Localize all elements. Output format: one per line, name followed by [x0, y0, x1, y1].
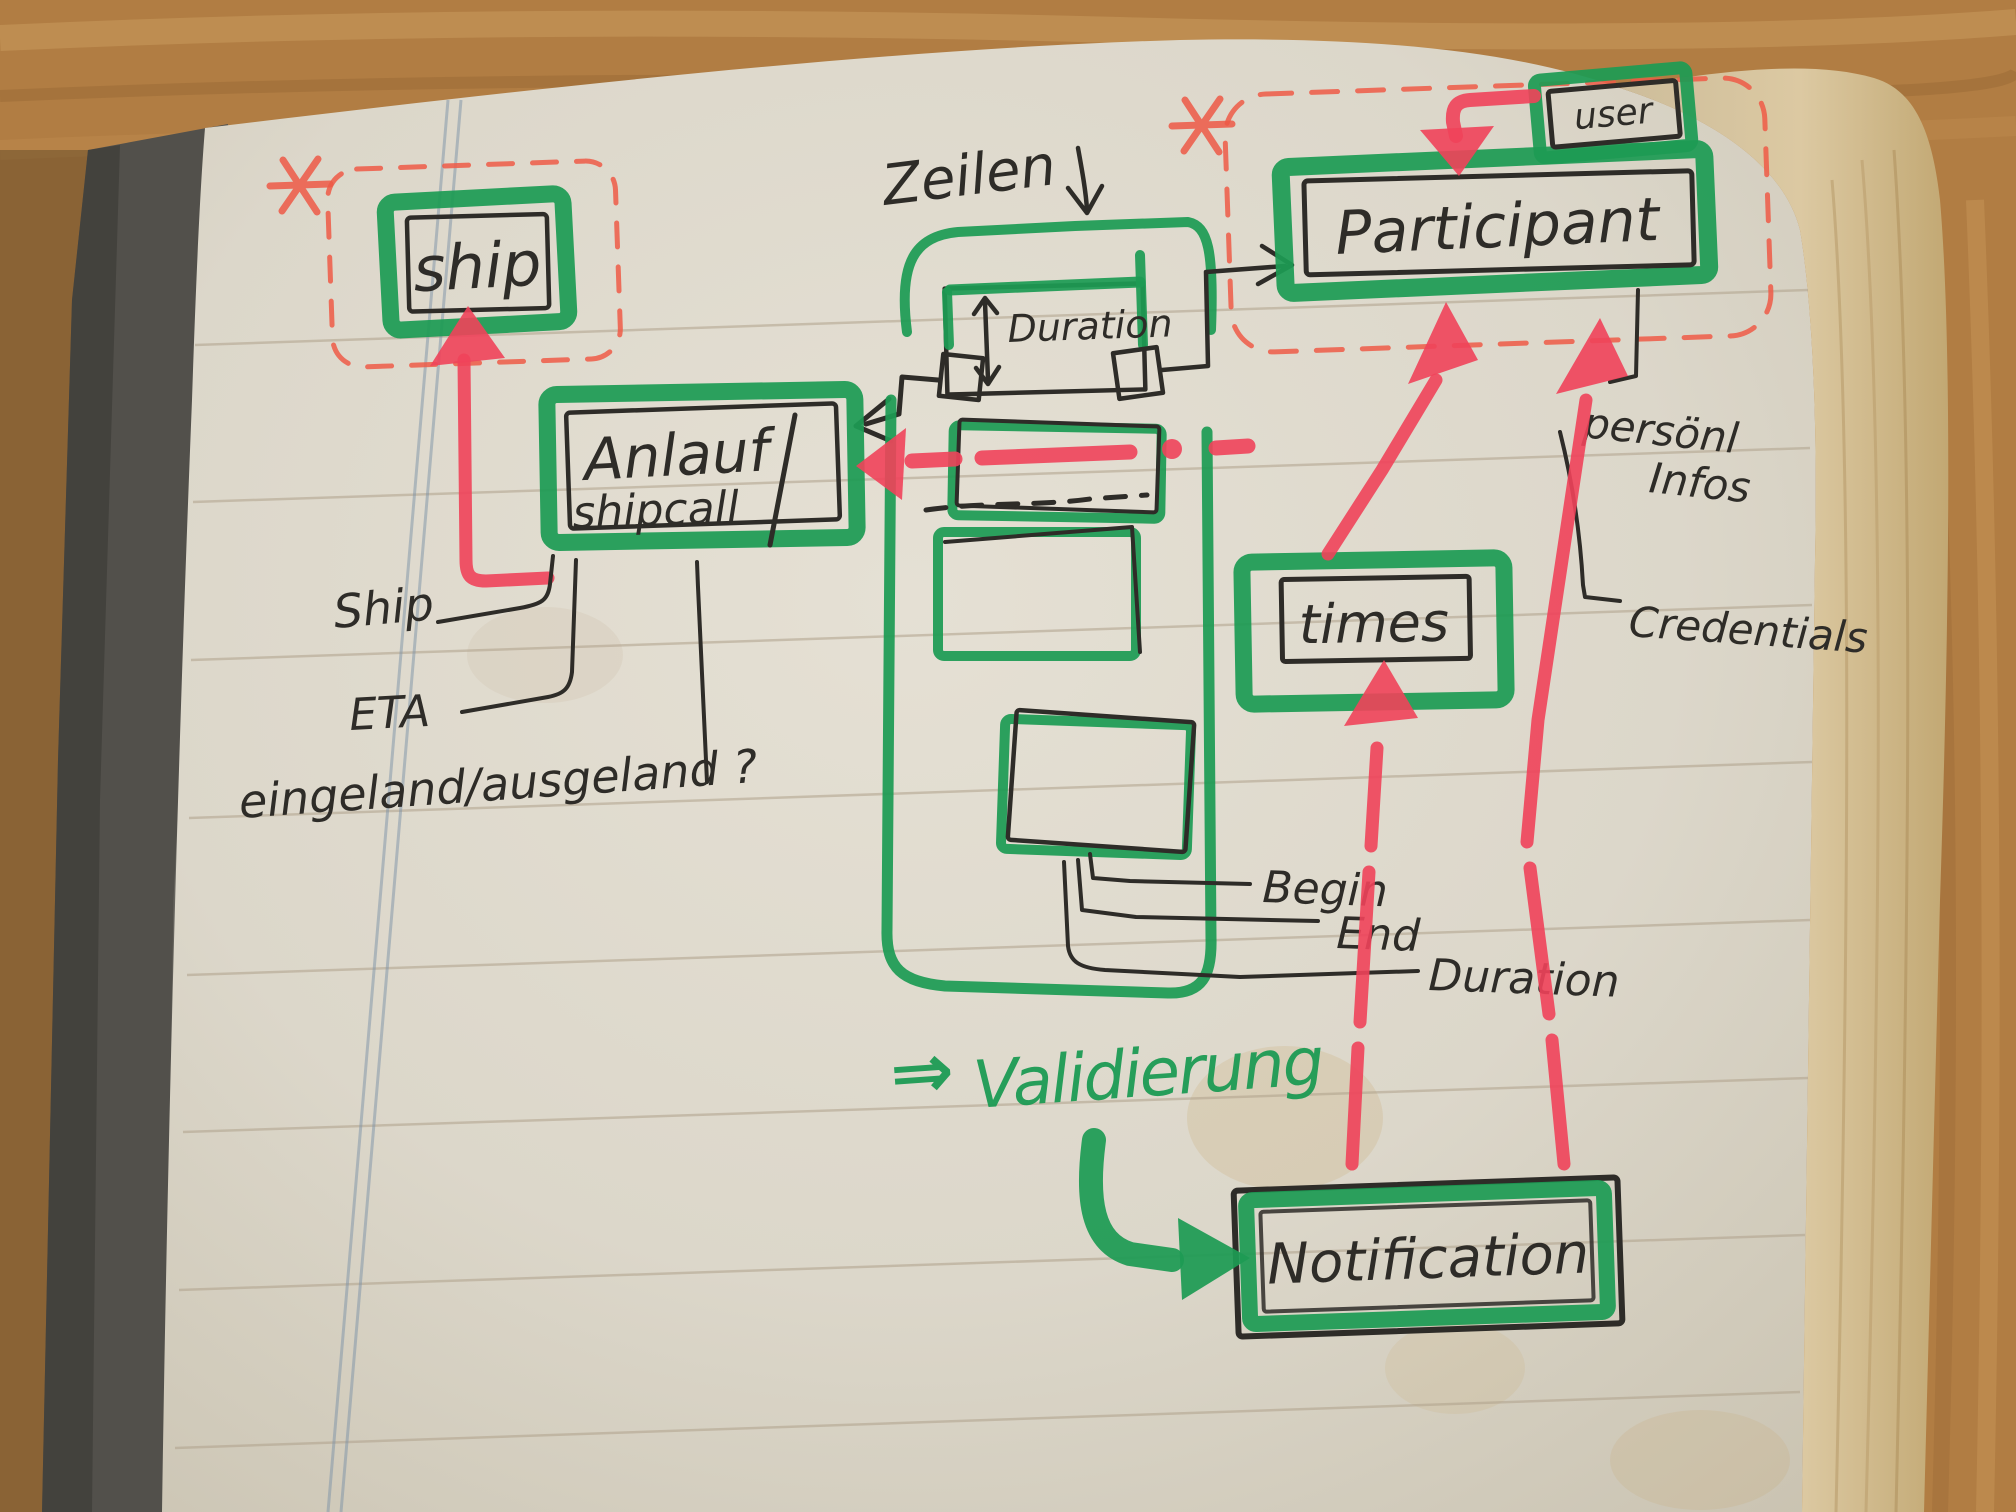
shipcall-box-label-2: shipcall: [572, 482, 741, 539]
page-stain: [1385, 1322, 1525, 1414]
shipcall-box-label-1: Anlauf: [578, 416, 778, 494]
duration-box-label: Duration: [1007, 301, 1173, 351]
times-box-label: times: [1298, 591, 1449, 657]
notebook-photo: ship Zeilen Duration: [0, 0, 2016, 1512]
user-box-label: user: [1572, 90, 1656, 138]
eta-label: ETA: [348, 686, 431, 741]
ship-box-label: ship: [411, 227, 543, 307]
validierung-arrow: ⇒: [887, 1025, 957, 1118]
participant-box-label: Participant: [1334, 185, 1663, 269]
duration-label: Duration: [1428, 950, 1621, 1008]
page-stain: [467, 607, 623, 703]
notification-box-label: Notification: [1266, 1221, 1590, 1297]
page-stain: [1610, 1410, 1790, 1510]
notification-box: Notification: [1234, 1177, 1623, 1336]
ship-attribute-label: Ship: [331, 576, 436, 639]
end-label: End: [1336, 908, 1422, 962]
